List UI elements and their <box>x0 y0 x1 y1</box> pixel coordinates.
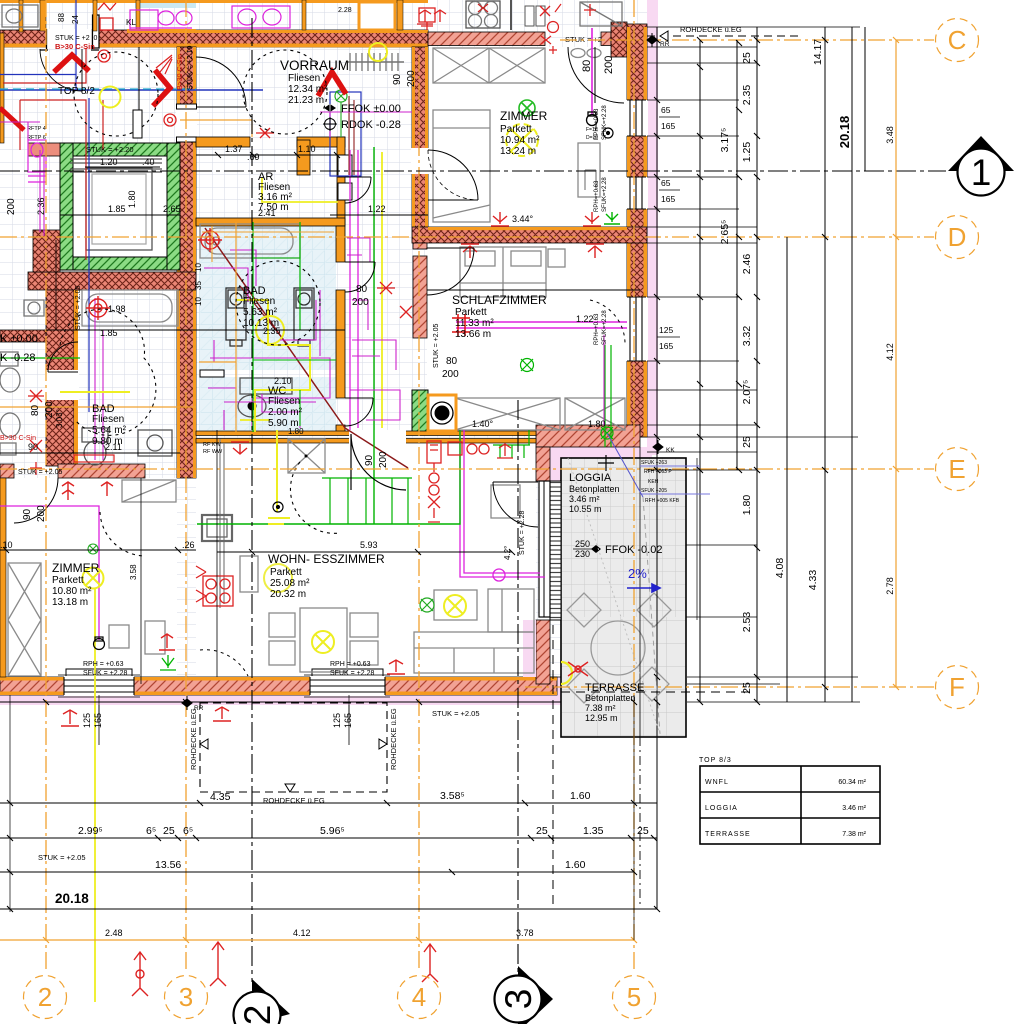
svg-text:11.33 m²: 11.33 m² <box>455 318 494 329</box>
svg-text:K -0.28: K -0.28 <box>0 352 35 364</box>
svg-text:C: C <box>948 25 967 55</box>
svg-text:5.93: 5.93 <box>360 540 378 550</box>
svg-text:1.80: 1.80 <box>588 419 606 429</box>
svg-text:25: 25 <box>741 52 753 64</box>
svg-text:SFUK = +2.28: SFUK = +2.28 <box>330 670 374 677</box>
svg-text:250: 250 <box>575 539 590 549</box>
svg-text:SFUK = +2.28: SFUK = +2.28 <box>83 670 127 677</box>
svg-text:F: F <box>949 672 965 702</box>
svg-text:90: 90 <box>364 454 375 466</box>
svg-text:125: 125 <box>82 713 92 728</box>
svg-text:65: 65 <box>661 105 671 115</box>
svg-text:.26: .26 <box>182 540 195 550</box>
svg-text:1.10: 1.10 <box>298 144 316 154</box>
svg-text:KEH: KEH <box>648 479 659 485</box>
svg-text:13.18 m: 13.18 m <box>52 597 88 608</box>
svg-text:200: 200 <box>603 56 615 74</box>
svg-text:4.2°: 4.2° <box>503 546 512 560</box>
svg-text:10.55 m: 10.55 m <box>569 504 602 514</box>
svg-text:21.23 m: 21.23 m <box>288 95 324 106</box>
svg-text:2.65⁵: 2.65⁵ <box>719 220 731 245</box>
svg-text:4.12: 4.12 <box>885 343 895 361</box>
svg-text:1.25: 1.25 <box>741 142 753 163</box>
svg-text:ROHDECKE ü.EG: ROHDECKE ü.EG <box>189 708 198 770</box>
svg-text:B>30 C-Sin: B>30 C-Sin <box>55 42 95 51</box>
svg-text:ROHDECKE ü.EG: ROHDECKE ü.EG <box>263 796 325 805</box>
svg-text:3.46 m²: 3.46 m² <box>569 494 600 504</box>
svg-text:20.18: 20.18 <box>55 891 89 906</box>
svg-text:4: 4 <box>412 982 426 1012</box>
svg-text:3.78: 3.78 <box>516 928 534 938</box>
svg-text:WNFL: WNFL <box>705 779 729 786</box>
svg-text:14.17: 14.17 <box>812 39 824 65</box>
svg-text:LOGGIA: LOGGIA <box>569 472 612 484</box>
svg-text:24: 24 <box>71 15 80 24</box>
svg-text:STUK = +2 .0: STUK = +2 .0 <box>55 35 98 42</box>
svg-text:Betonplatten: Betonplatten <box>569 484 620 494</box>
svg-text:3.46 m²: 3.46 m² <box>842 805 866 812</box>
svg-text:Fliesen: Fliesen <box>243 296 275 307</box>
svg-text:D: D <box>948 222 967 252</box>
svg-text:STUK = +2.28: STUK = +2.28 <box>519 511 526 555</box>
svg-text:RPH = +0.63: RPH = +0.63 <box>330 661 371 668</box>
svg-text:6⁵: 6⁵ <box>146 825 156 837</box>
svg-text:RF WW: RF WW <box>203 449 223 455</box>
svg-text:5.63 m²: 5.63 m² <box>243 307 278 318</box>
svg-text:RFTP 6: RFTP 6 <box>27 135 46 141</box>
svg-text:3.48: 3.48 <box>885 126 895 144</box>
svg-text:RPH = +0.63: RPH = +0.63 <box>83 661 124 668</box>
svg-text:2.36: 2.36 <box>36 197 46 215</box>
svg-text:20.18: 20.18 <box>837 116 852 149</box>
svg-text:2: 2 <box>237 1005 278 1024</box>
svg-text:RFH +063 P: RFH +063 P <box>644 469 672 475</box>
svg-text:STUK = +2.05: STUK = +2.05 <box>432 709 480 718</box>
svg-text:2.35: 2.35 <box>263 326 281 336</box>
svg-text:Fliesen: Fliesen <box>268 396 300 407</box>
svg-text:2%: 2% <box>628 566 647 581</box>
svg-text:12.34 m²: 12.34 m² <box>288 84 328 95</box>
svg-text:STUK = +2.20: STUK = +2.20 <box>86 145 134 154</box>
svg-text:SFUK=+2.28: SFUK=+2.28 <box>602 310 608 345</box>
svg-text:RR: RR <box>194 705 204 712</box>
svg-text:25: 25 <box>536 825 548 837</box>
svg-text:10: 10 <box>194 263 203 272</box>
svg-text:ZIMMER: ZIMMER <box>500 109 548 123</box>
svg-text:13.24 m: 13.24 m <box>500 146 536 157</box>
svg-text:125: 125 <box>332 713 342 728</box>
svg-text:200: 200 <box>406 70 417 87</box>
svg-text:VORRAUM: VORRAUM <box>280 58 349 73</box>
svg-text:3.03°: 3.03° <box>55 409 64 428</box>
svg-text:1.85: 1.85 <box>108 204 126 214</box>
svg-text:2.35: 2.35 <box>741 85 753 106</box>
svg-text:2: 2 <box>38 982 52 1012</box>
svg-text:Parkett: Parkett <box>52 575 84 586</box>
svg-text:RDOK -0.28: RDOK -0.28 <box>341 119 401 131</box>
svg-text:.40: .40 <box>142 157 155 167</box>
svg-text:FFOK -0.02: FFOK -0.02 <box>605 544 662 556</box>
svg-text:Parkett: Parkett <box>455 307 487 318</box>
svg-text:STUK = +2.05: STUK = +2.05 <box>38 853 86 862</box>
svg-text:2.53: 2.53 <box>741 612 753 633</box>
svg-text:1.80: 1.80 <box>127 190 137 208</box>
svg-text:80: 80 <box>356 284 368 295</box>
svg-text:165: 165 <box>659 341 673 351</box>
svg-text:STUK = +2.05: STUK = +2.05 <box>18 469 62 476</box>
svg-text:2.28: 2.28 <box>338 7 352 14</box>
svg-text:B>30 C-Sin: B>30 C-Sin <box>177 54 184 90</box>
svg-text:10.80 m²: 10.80 m² <box>52 586 92 597</box>
svg-text:7.38 m²: 7.38 m² <box>585 703 616 713</box>
svg-text:2.46: 2.46 <box>741 254 753 275</box>
svg-text:Fliesen: Fliesen <box>92 414 124 425</box>
svg-text:FFOK ±0.00: FFOK ±0.00 <box>341 103 401 115</box>
svg-text:4.08: 4.08 <box>774 558 786 579</box>
svg-text:KK: KK <box>666 447 675 454</box>
svg-text:12.95 m: 12.95 m <box>585 713 618 723</box>
svg-text:1.22: 1.22 <box>576 314 594 324</box>
svg-text:4.35: 4.35 <box>210 791 231 803</box>
svg-text:ROHDECKE ü.EG: ROHDECKE ü.EG <box>680 25 742 34</box>
svg-text:TOP 8/2: TOP 8/2 <box>58 86 95 97</box>
svg-text:165: 165 <box>661 194 675 204</box>
svg-text:STUK = +2.05: STUK = +2.05 <box>433 324 440 368</box>
svg-text:SFUK=+2.28: SFUK=+2.28 <box>602 177 608 212</box>
svg-text:90: 90 <box>28 442 38 452</box>
svg-text:90: 90 <box>392 73 403 85</box>
svg-text:20.32 m: 20.32 m <box>270 589 306 600</box>
svg-text:1.80: 1.80 <box>288 427 304 436</box>
svg-text:3.44°: 3.44° <box>512 214 534 224</box>
svg-text:5.96⁵: 5.96⁵ <box>320 825 345 837</box>
svg-text:TOP 8/3: TOP 8/3 <box>699 757 732 764</box>
svg-text:3: 3 <box>498 989 539 1010</box>
svg-text:6⁵: 6⁵ <box>183 825 193 837</box>
svg-text:2.41: 2.41 <box>258 208 276 218</box>
svg-text:125: 125 <box>659 325 673 335</box>
svg-text:2.00 m²: 2.00 m² <box>268 407 303 418</box>
svg-text:65: 65 <box>661 178 671 188</box>
svg-text:Parkett: Parkett <box>270 567 302 578</box>
svg-text:RFTP 4: RFTP 4 <box>27 126 46 132</box>
svg-text:200: 200 <box>44 401 55 418</box>
svg-text:Fliesen: Fliesen <box>288 73 320 84</box>
svg-text:165: 165 <box>93 713 103 728</box>
svg-text:STUK = +2.05: STUK = +2.05 <box>75 286 82 330</box>
svg-text:200: 200 <box>352 297 369 308</box>
svg-text:7.38 m²: 7.38 m² <box>842 831 866 838</box>
svg-text:165: 165 <box>661 121 675 131</box>
svg-text:1.40°: 1.40° <box>472 419 494 429</box>
svg-text:2.07⁵: 2.07⁵ <box>741 380 753 405</box>
svg-text:Betonplatten: Betonplatten <box>585 693 636 703</box>
svg-text:RPH=+0.63: RPH=+0.63 <box>594 180 600 212</box>
svg-text:ZIMMER: ZIMMER <box>52 561 100 575</box>
svg-text:1.60: 1.60 <box>570 790 591 802</box>
svg-text:35: 35 <box>194 281 203 290</box>
svg-text:90: 90 <box>22 508 33 520</box>
svg-text:230: 230 <box>575 549 590 559</box>
svg-text:80: 80 <box>581 60 593 72</box>
svg-text:3.17⁵: 3.17⁵ <box>719 128 731 153</box>
svg-text:1.98: 1.98 <box>108 304 126 314</box>
svg-text:1: 1 <box>971 152 992 193</box>
svg-text:RPH=+0.63: RPH=+0.63 <box>594 313 600 345</box>
svg-text:K ±0.00: K ±0.00 <box>0 333 38 345</box>
svg-text:1.22: 1.22 <box>368 204 386 214</box>
svg-text:3: 3 <box>179 982 193 1012</box>
svg-text:2.11: 2.11 <box>105 442 122 452</box>
svg-text:Parkett: Parkett <box>500 124 532 135</box>
svg-text:1.37: 1.37 <box>225 144 243 154</box>
svg-text:WOHN- ESSZIMMER: WOHN- ESSZIMMER <box>268 552 385 566</box>
svg-text:2.65: 2.65 <box>163 204 181 214</box>
svg-text:RPH=+0.63: RPH=+0.63 <box>594 108 600 140</box>
svg-text:RFH +005 KFB: RFH +005 KFB <box>645 498 680 504</box>
svg-text:SFUK +205: SFUK +205 <box>641 488 667 494</box>
svg-text:60.34 m²: 60.34 m² <box>838 779 866 786</box>
svg-text:1.35: 1.35 <box>583 825 604 837</box>
svg-text:2.78: 2.78 <box>885 577 895 595</box>
svg-text:10: 10 <box>194 297 203 306</box>
svg-text:200: 200 <box>442 369 459 380</box>
svg-text:RR: RR <box>660 41 670 48</box>
svg-text:25: 25 <box>163 825 175 837</box>
svg-text:165: 165 <box>343 713 353 728</box>
svg-text:3.58⁵: 3.58⁵ <box>440 790 465 802</box>
svg-text:200: 200 <box>378 451 389 468</box>
svg-text:25.08 m²: 25.08 m² <box>270 578 310 589</box>
svg-text:200: 200 <box>36 505 47 522</box>
svg-text:ROHDECKE ü.EG: ROHDECKE ü.EG <box>389 708 398 770</box>
svg-text:.69: .69 <box>247 152 260 162</box>
svg-text:80: 80 <box>446 356 458 367</box>
svg-text:5.64 m²: 5.64 m² <box>92 425 127 436</box>
svg-text:E: E <box>948 454 965 484</box>
svg-text:1.85: 1.85 <box>100 328 118 338</box>
svg-text:1.80: 1.80 <box>741 495 753 516</box>
svg-text:4.12: 4.12 <box>293 928 311 938</box>
svg-text:STUK = +2.10: STUK = +2.10 <box>187 46 194 90</box>
svg-text:KL: KL <box>126 18 136 27</box>
svg-text:B>30 C-Sin: B>30 C-Sin <box>0 435 36 442</box>
svg-text:SFUK=+2.28: SFUK=+2.28 <box>602 105 608 140</box>
svg-text:2.48: 2.48 <box>105 928 123 938</box>
svg-text:13.66 m: 13.66 m <box>455 329 491 340</box>
svg-text:3.32: 3.32 <box>741 326 753 347</box>
svg-text:3.58: 3.58 <box>129 564 138 580</box>
svg-text:1.20: 1.20 <box>100 157 118 167</box>
svg-text:25: 25 <box>741 436 753 448</box>
svg-text:RF KW: RF KW <box>203 442 222 448</box>
svg-text:13.56: 13.56 <box>155 859 181 871</box>
svg-text:5: 5 <box>627 982 641 1012</box>
svg-text:88: 88 <box>57 13 66 22</box>
svg-text:.10: .10 <box>0 540 13 550</box>
svg-text:TERRASSE: TERRASSE <box>705 831 751 838</box>
svg-text:LOGGIA: LOGGIA <box>705 805 738 812</box>
svg-text:SFUK +263: SFUK +263 <box>641 460 667 466</box>
svg-text:1.60: 1.60 <box>565 859 586 871</box>
svg-text:4.33: 4.33 <box>807 570 819 591</box>
svg-text:200: 200 <box>6 198 17 215</box>
svg-text:2.99⁵: 2.99⁵ <box>78 825 103 837</box>
svg-text:10.94 m²: 10.94 m² <box>500 135 540 146</box>
svg-text:80: 80 <box>30 404 41 416</box>
svg-text:25: 25 <box>637 825 649 837</box>
svg-text:SCHLAFZIMMER: SCHLAFZIMMER <box>452 293 547 307</box>
